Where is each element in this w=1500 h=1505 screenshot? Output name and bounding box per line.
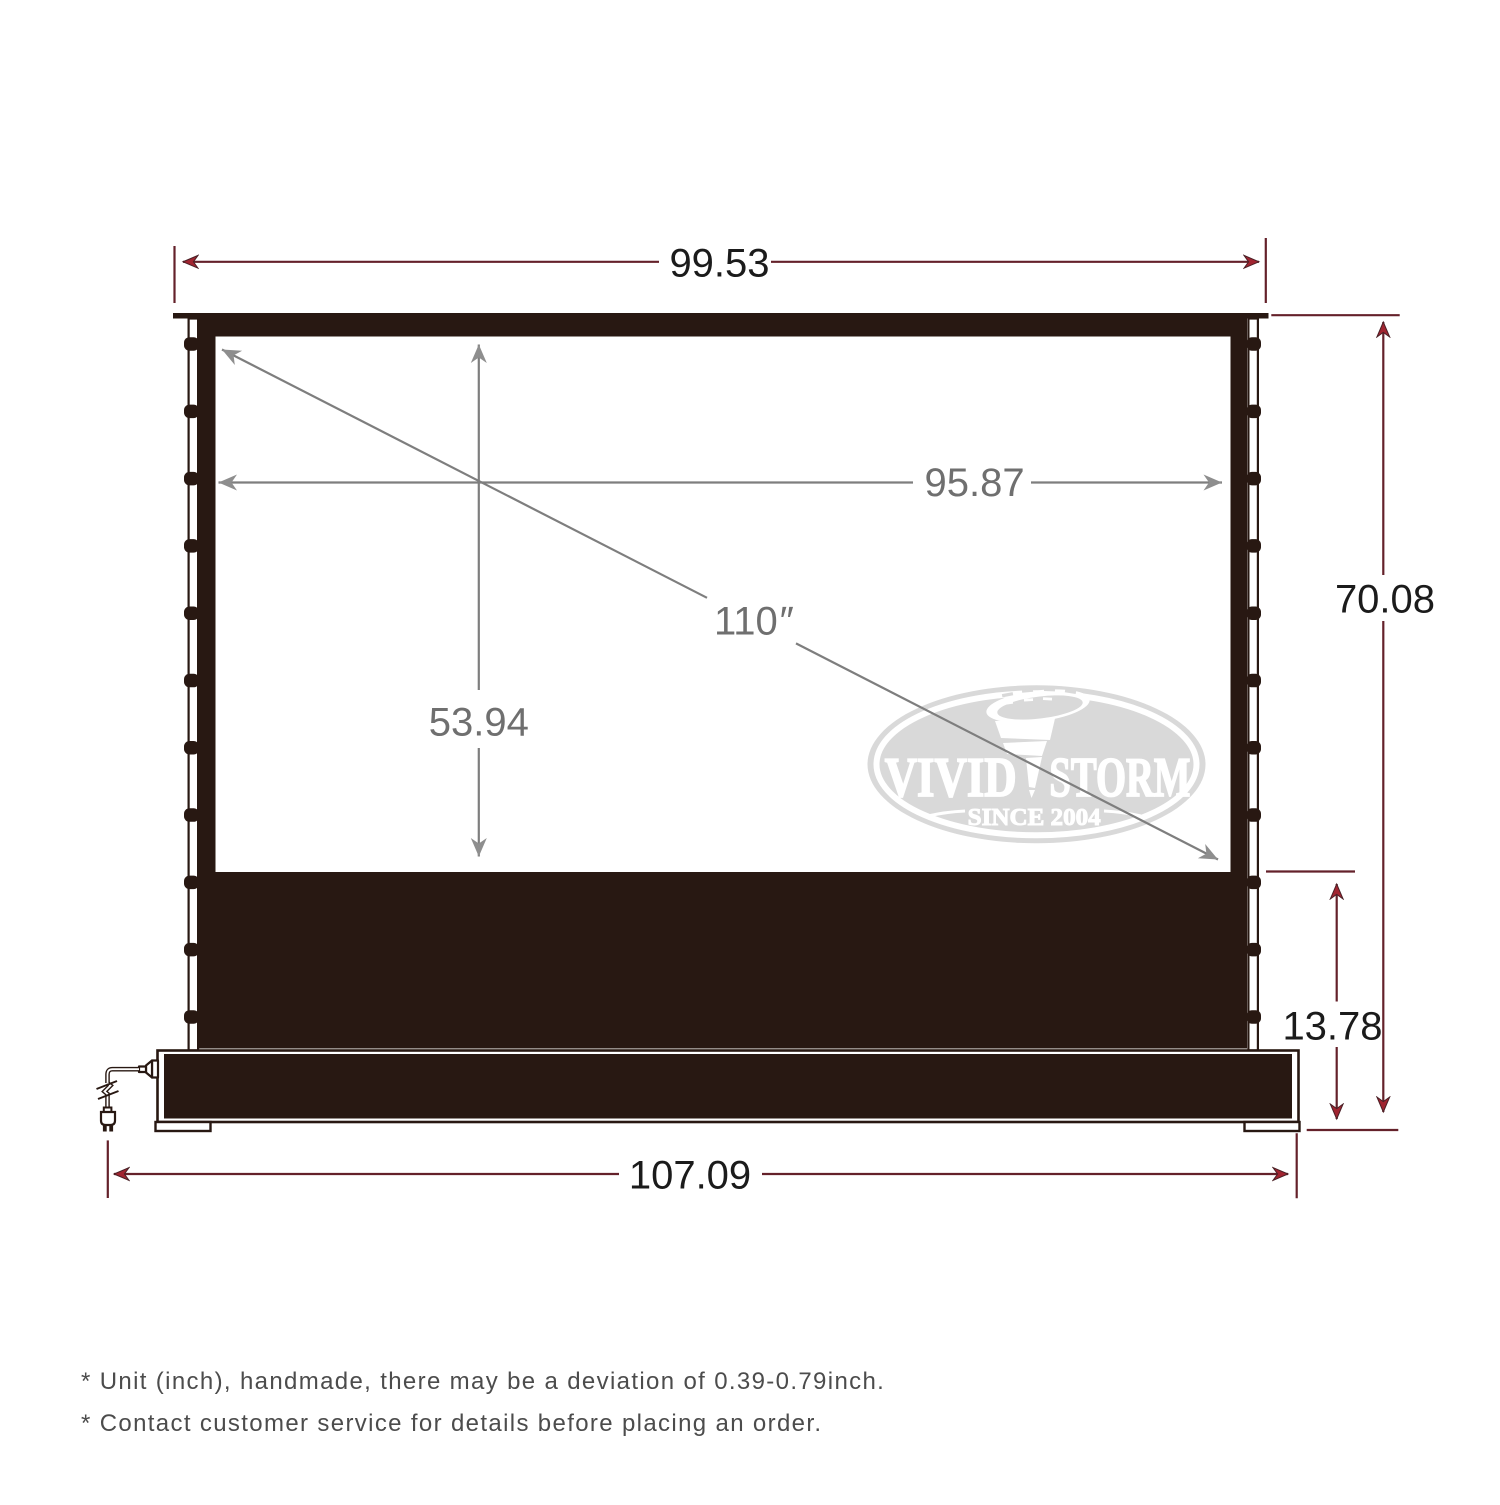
- svg-text:13.78: 13.78: [1282, 1004, 1382, 1048]
- svg-text:* Unit (inch), handmade, there: * Unit (inch), handmade, there may be a …: [81, 1368, 885, 1395]
- svg-text:SINCE 2004: SINCE 2004: [968, 805, 1101, 831]
- svg-text:* Contact customer service for: * Contact customer service for details b…: [81, 1410, 822, 1437]
- svg-text:53.94: 53.94: [429, 701, 529, 745]
- svg-text:110″: 110″: [714, 600, 794, 644]
- svg-text:107.09: 107.09: [629, 1154, 751, 1198]
- svg-text:70.08: 70.08: [1335, 577, 1435, 621]
- svg-text:99.53: 99.53: [669, 241, 769, 285]
- svg-text:STORM: STORM: [1049, 747, 1190, 809]
- svg-text:95.87: 95.87: [925, 461, 1025, 505]
- svg-text:VIVID: VIVID: [885, 747, 1017, 809]
